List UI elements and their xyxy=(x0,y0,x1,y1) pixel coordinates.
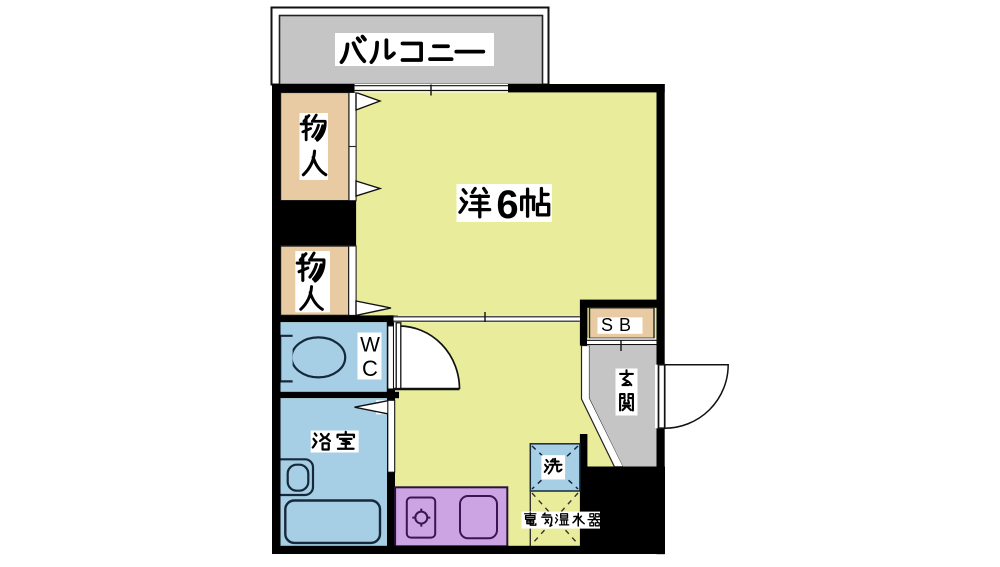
svg-text:W: W xyxy=(360,334,380,357)
svg-text:SB: SB xyxy=(601,315,637,335)
svg-text:C: C xyxy=(362,356,378,381)
svg-text:6: 6 xyxy=(496,183,518,227)
